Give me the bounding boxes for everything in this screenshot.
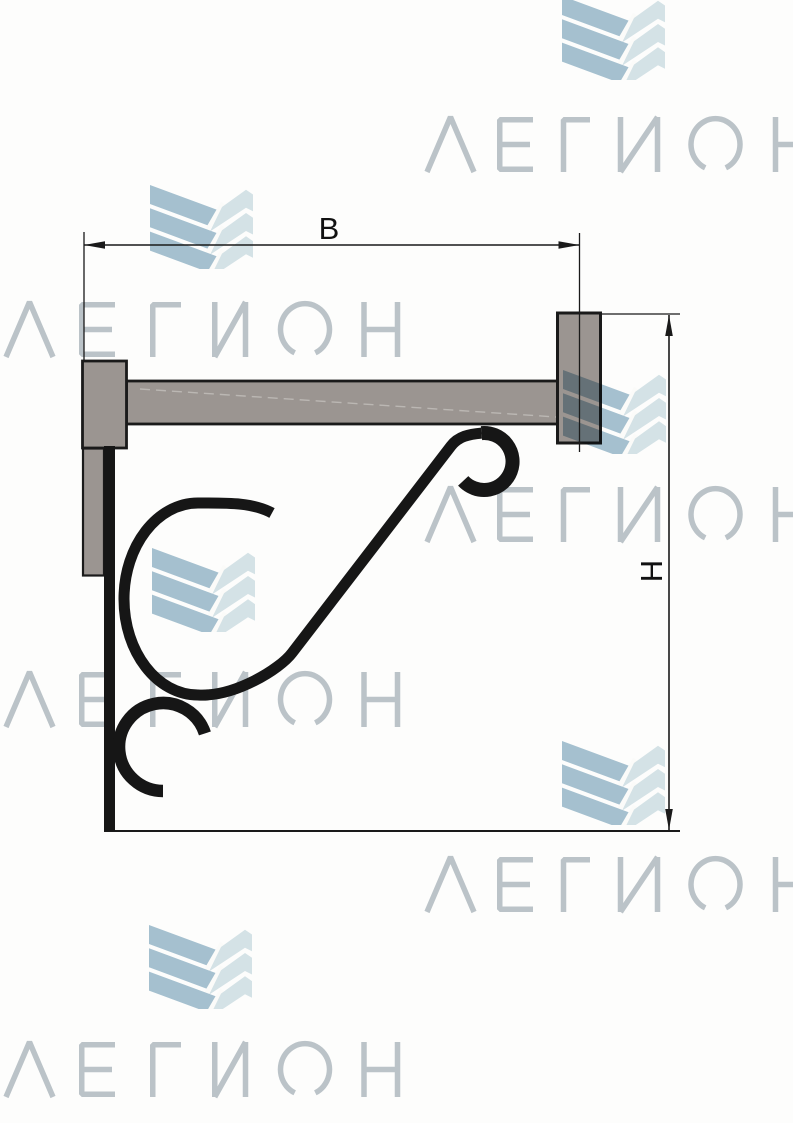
svg-text:В: В: [319, 211, 340, 246]
svg-text:Н: Н: [634, 560, 669, 582]
